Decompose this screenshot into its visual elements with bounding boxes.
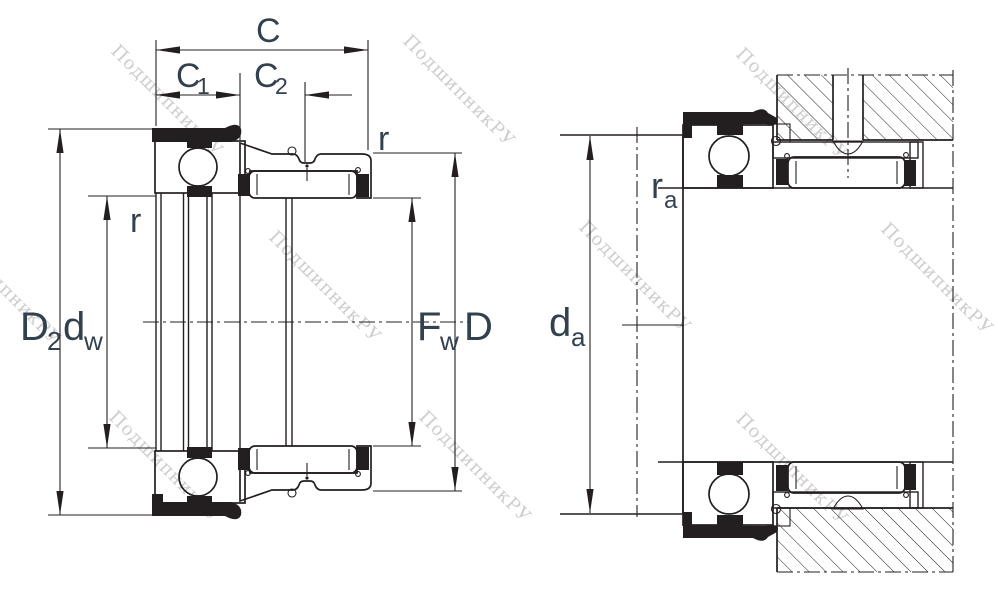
ball-cage [187,186,212,197]
roller-end-ring [776,465,788,491]
bearing-technical-drawing: ПодшипникРУ ПодшипникРУ ПодшипникРУ Подш… [0,0,998,596]
roller-end-ring [357,174,369,197]
roller-end-ring [776,159,788,185]
needle-roller [788,157,905,188]
oil-hole [305,476,308,479]
watermark-text: ПодшипникРУ [876,219,997,340]
drawing-svg: ПодшипникРУ ПодшипникРУ ПодшипникРУ Подш… [0,0,998,596]
label-Fw: Fw [417,305,459,356]
watermark-text: ПодшипникРУ [574,217,695,338]
cage-pin [356,472,361,477]
label-D2: D2 [20,305,61,356]
roller-end-ring [357,447,369,470]
needle-roller-top [249,171,357,198]
cage-pin [904,153,909,158]
label-ra: ra [651,165,678,214]
shaft-outline [560,135,953,514]
ball-cage [187,447,212,458]
ball-cage [717,175,743,188]
label-r-outer: r [378,120,389,158]
ball-cage [717,515,743,530]
cage-pin [904,493,909,498]
label-C1: C1 [176,57,210,99]
cage-pin [356,168,361,173]
seal-cap-bottom-wrap [152,494,163,516]
watermark-text: ПодшипникРУ [414,407,535,528]
label-r-bore: r [130,202,141,240]
right-view-mounting-section: da ra [549,68,953,576]
seal-cap-wrap [683,112,692,138]
cage-pin [785,493,790,498]
label-C2: C2 [254,57,288,99]
oil-hole [305,164,308,167]
label-D: D [464,305,493,349]
ball-top [179,148,217,186]
ball [709,136,749,176]
ball-cage [717,120,743,135]
label-C: C [256,12,281,50]
needle-roller-bottom [249,446,357,473]
label-da: da [549,301,586,352]
label-dw: dw [63,305,103,356]
housing [777,68,953,576]
ball-cage [187,496,212,507]
ball [709,474,749,514]
watermark-text: ПодшипникРУ [264,227,385,348]
left-view-dimensions [48,40,468,515]
needle-cup [773,492,918,508]
ball-cage [187,137,212,148]
ball-cage [717,462,743,475]
seal-cap-wrap [683,512,692,538]
watermark-text: ПодшипникРУ [398,31,519,152]
